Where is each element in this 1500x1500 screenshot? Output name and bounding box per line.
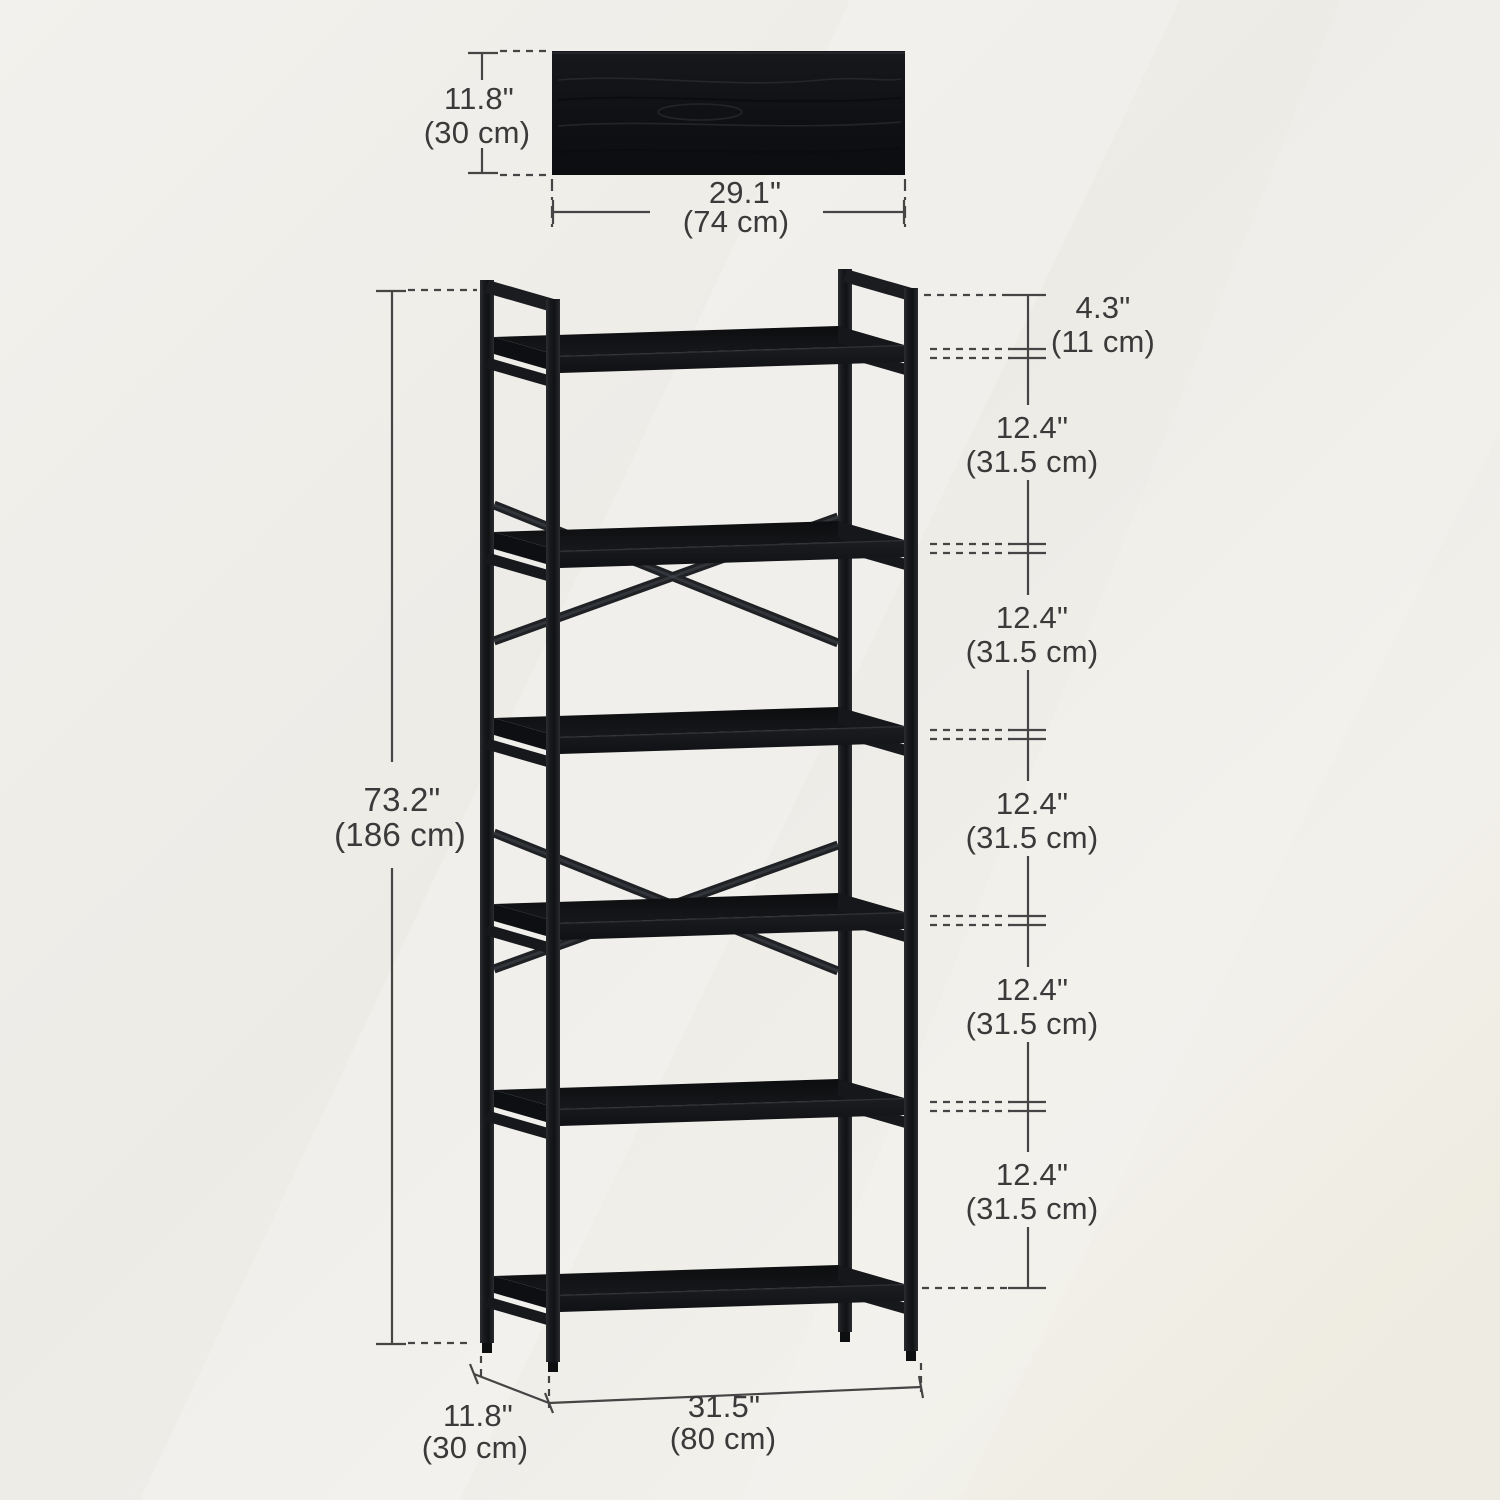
width-label-in: 31.5" [688, 1389, 760, 1424]
panel-height-label-in: 11.8" [444, 81, 514, 116]
tier-gap-3-in: 12.4" [996, 786, 1068, 821]
tier-gap-1-in: 12.4" [996, 410, 1068, 445]
top-gap-label-cm: (11 cm) [1051, 324, 1155, 359]
frame-post-front-left [546, 299, 560, 1362]
tier-gap-2-in: 12.4" [996, 600, 1068, 635]
tier-gap-4-in: 12.4" [996, 972, 1068, 1007]
tier-gap-4-cm: (31.5 cm) [966, 1006, 1099, 1041]
panel-board [552, 51, 905, 175]
product-dimension-diagram: 11.8" (30 cm) 29.1" (74 cm) [0, 0, 1500, 1500]
tier-gap-5-cm: (31.5 cm) [966, 1191, 1099, 1226]
foot-front-left [548, 1362, 558, 1372]
panel-width-label-cm: (74 cm) [683, 204, 789, 239]
tier-gap-3-cm: (31.5 cm) [966, 820, 1099, 855]
total-height-label-cm: (186 cm) [334, 816, 466, 853]
total-height-label-in: 73.2" [364, 781, 441, 818]
frame-post-back-right [838, 269, 852, 1332]
tier-gap-1-cm: (31.5 cm) [966, 444, 1099, 479]
foot-front-right [906, 1351, 916, 1361]
foot-back-right [840, 1332, 850, 1342]
foot-back-left [482, 1343, 492, 1353]
tier-gap-2-cm: (31.5 cm) [966, 634, 1099, 669]
frame-post-back-left [480, 280, 494, 1343]
depth-label-cm: (30 cm) [422, 1430, 528, 1465]
panel-height-label-cm: (30 cm) [424, 115, 530, 150]
tier-gap-5-in: 12.4" [996, 1157, 1068, 1192]
width-label-cm: (80 cm) [670, 1421, 776, 1456]
frame-post-front-right [904, 288, 918, 1351]
top-gap-label-in: 4.3" [1076, 290, 1131, 325]
dimension-diagram-svg: 11.8" (30 cm) 29.1" (74 cm) [0, 0, 1500, 1500]
depth-label-in: 11.8" [443, 1398, 513, 1433]
